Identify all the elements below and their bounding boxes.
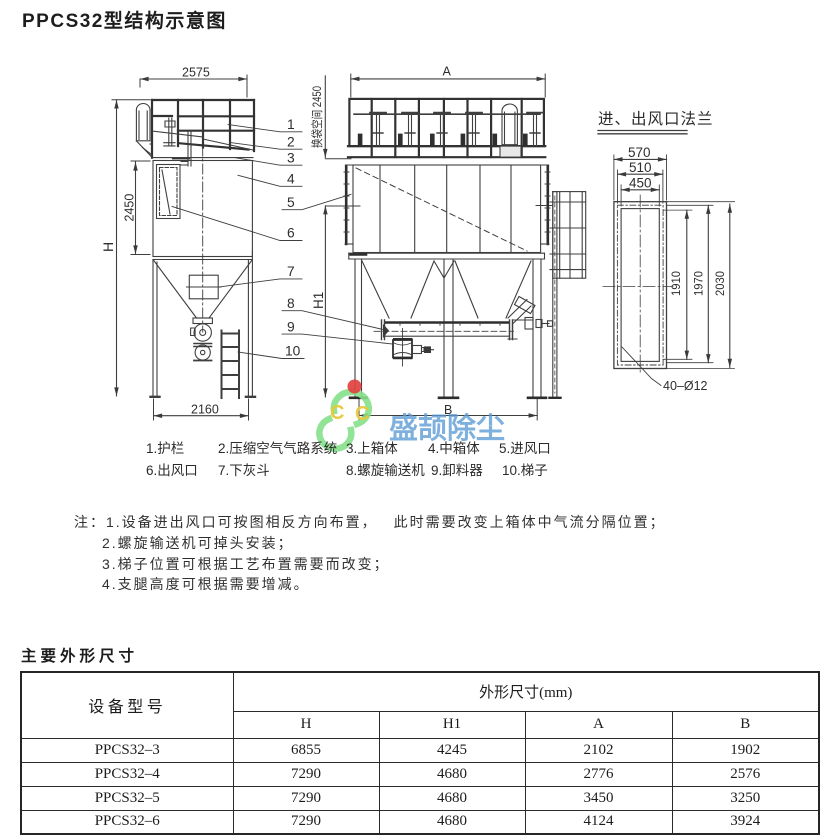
svg-text:进、出风口法兰: 进、出风口法兰 [598, 110, 714, 128]
svg-text:A: A [443, 65, 452, 79]
svg-text:450: 450 [629, 176, 652, 191]
svg-text:2450: 2450 [123, 194, 137, 222]
svg-text:1910: 1910 [669, 271, 683, 296]
svg-text:C: C [355, 403, 369, 425]
svg-text:8: 8 [287, 296, 295, 311]
svg-text:40–Ø12: 40–Ø12 [663, 379, 708, 393]
svg-text:6: 6 [287, 226, 295, 241]
svg-text:1970: 1970 [692, 271, 706, 296]
svg-text:2: 2 [287, 134, 295, 149]
svg-text:C: C [330, 402, 344, 424]
svg-text:7: 7 [287, 264, 295, 279]
svg-text:H: H [100, 242, 116, 252]
svg-text:3: 3 [287, 150, 295, 165]
svg-text:10: 10 [285, 344, 301, 359]
svg-text:2030: 2030 [713, 271, 727, 296]
svg-text:2160: 2160 [191, 403, 219, 417]
svg-text:1: 1 [287, 117, 295, 132]
svg-text:9: 9 [287, 319, 295, 334]
svg-text:570: 570 [628, 145, 651, 160]
svg-text:510: 510 [629, 160, 652, 175]
svg-text:H1: H1 [311, 292, 326, 309]
svg-text:2575: 2575 [182, 66, 210, 80]
svg-text:换袋空间 2450: 换袋空间 2450 [310, 86, 324, 148]
svg-text:4: 4 [287, 172, 295, 187]
svg-text:5: 5 [287, 195, 295, 210]
